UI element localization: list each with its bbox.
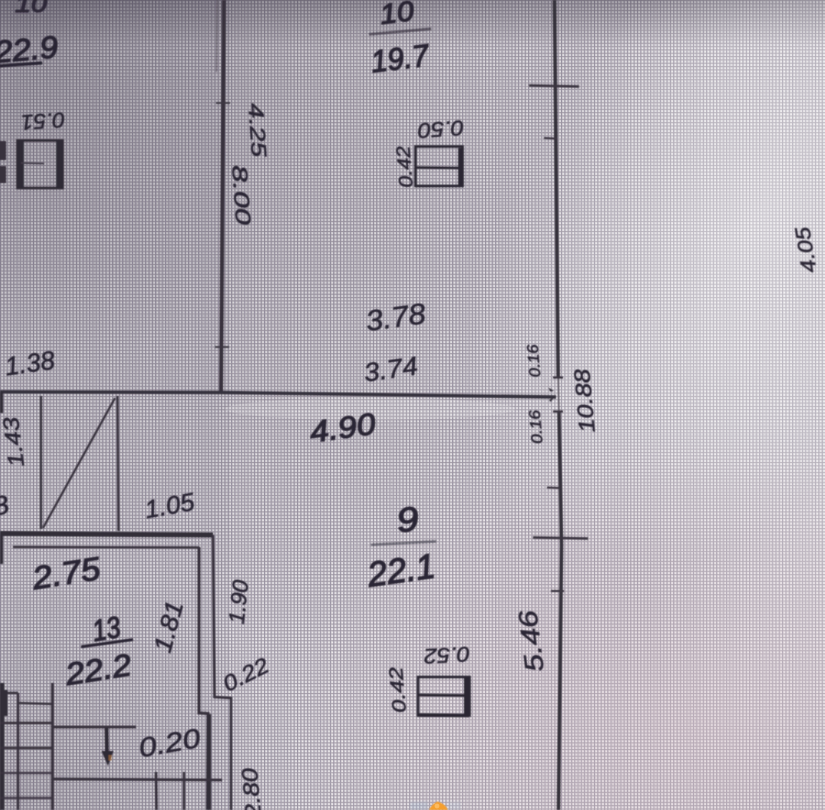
svg-text:4.25: 4.25	[243, 102, 270, 158]
svg-text:0.42: 0.42	[386, 666, 411, 714]
svg-text:0.16: 0.16	[527, 409, 547, 445]
svg-text:10: 10	[15, 0, 48, 18]
svg-text:2.80: 2.80	[237, 766, 266, 810]
svg-text:1.90: 1.90	[224, 578, 254, 625]
svg-text:0.52: 0.52	[423, 642, 470, 667]
svg-text:9: 9	[394, 500, 421, 540]
svg-text:19.7: 19.7	[369, 37, 433, 79]
svg-text:10: 10	[378, 0, 416, 30]
svg-text:0.50: 0.50	[417, 115, 465, 141]
svg-text:8.00: 8.00	[227, 164, 254, 226]
svg-text:0.51: 0.51	[20, 107, 65, 133]
svg-text:0.16: 0.16	[525, 343, 545, 378]
svg-text:0.42: 0.42	[393, 145, 418, 189]
